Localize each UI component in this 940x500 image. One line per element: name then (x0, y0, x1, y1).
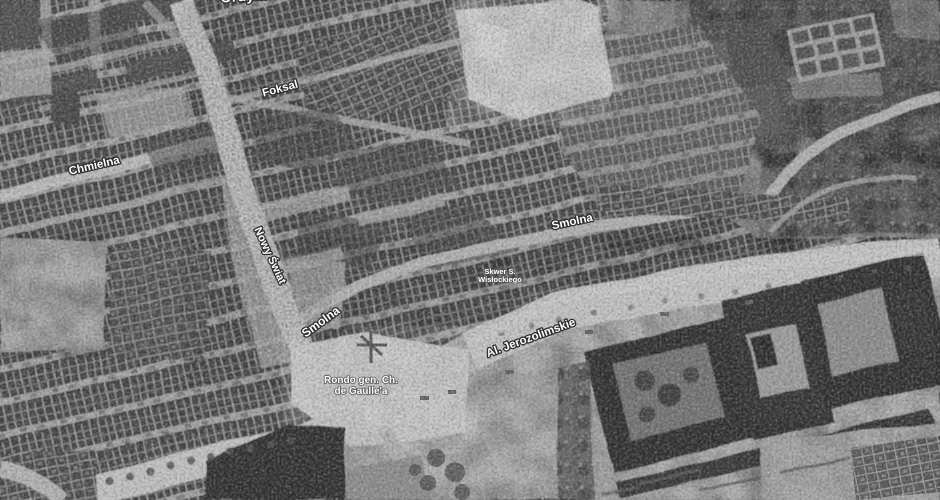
svg-text:Rondo gen. Ch.: Rondo gen. Ch. (324, 375, 398, 386)
svg-text:de Gaulle'a: de Gaulle'a (335, 386, 388, 397)
svg-text:Wisłockiego: Wisłockiego (478, 275, 522, 284)
